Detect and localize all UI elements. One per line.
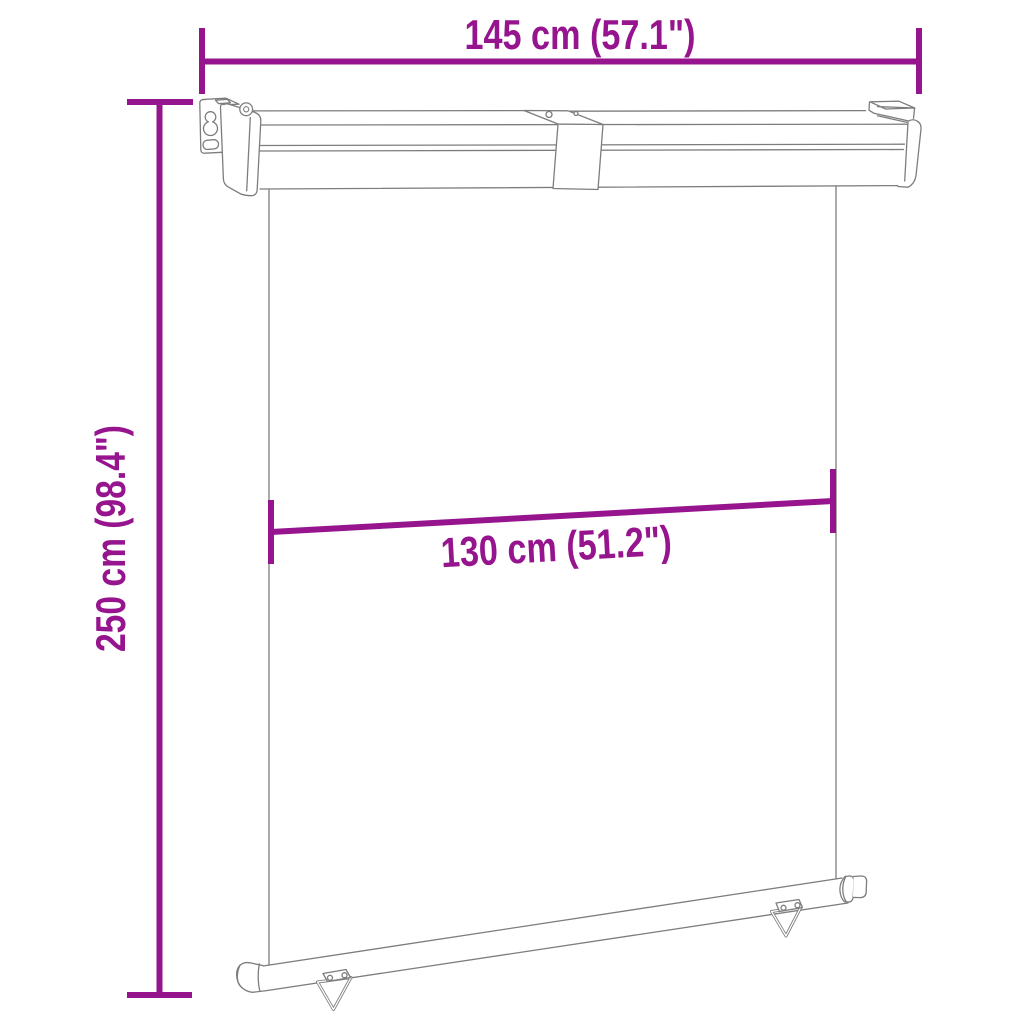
svg-text:145 cm (57.1"): 145 cm (57.1") [465,11,696,58]
svg-text:250 cm (98.4"): 250 cm (98.4") [87,425,134,652]
